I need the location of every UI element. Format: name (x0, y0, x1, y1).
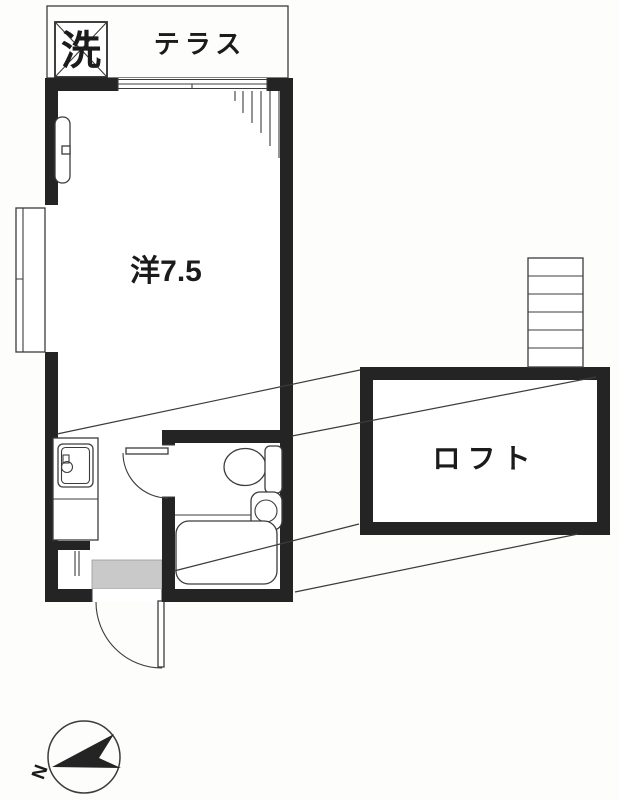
floor-plan-page: 洗 テラス 洋7.5 (0, 0, 619, 800)
terrace-label: テラス (154, 29, 246, 59)
bay-window-gap (45, 205, 58, 352)
entrance-door-swing-arc (96, 602, 162, 668)
bay-window (16, 205, 58, 352)
entry-mat (92, 560, 162, 589)
bathroom-wall-top (162, 430, 293, 443)
kitchen-partition-stub (50, 541, 90, 550)
loft-label: ロフト (432, 443, 537, 474)
entrance (92, 560, 164, 668)
terrace-window-frame (118, 78, 267, 91)
wall-fixture (55, 117, 70, 183)
kitchen-sink (58, 444, 93, 487)
bay-window-outline (16, 208, 45, 352)
washer-label: 洗 (61, 29, 101, 73)
loft-ladder (528, 258, 583, 367)
compass-needle-icon (52, 734, 121, 768)
entrance-gap (92, 589, 163, 602)
compass: N (28, 721, 121, 793)
fixture-handle (62, 146, 70, 154)
toilet-tank (265, 446, 282, 493)
projection-line-bottom-right (295, 534, 578, 592)
floor-plan-drawing: 洗 テラス 洋7.5 (0, 0, 619, 800)
bathroom-door-leaf (126, 448, 168, 454)
terrace-window (118, 78, 267, 91)
toilet-bowl (224, 449, 266, 486)
entrance-door-leaf (158, 601, 164, 667)
main-room-label: 洋7.5 (130, 255, 202, 288)
loft: ロフト (360, 367, 610, 535)
bathtub (176, 521, 277, 584)
terrace-area: 洗 テラス (47, 6, 288, 78)
